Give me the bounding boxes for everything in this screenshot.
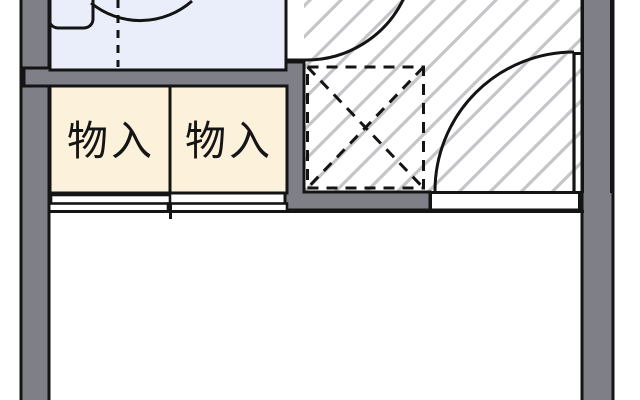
closet-left-label: 物入: [67, 118, 155, 164]
bathroom-floor: [50, 0, 286, 70]
closet-right-label: 物入: [185, 118, 273, 164]
wall-right: [582, 0, 613, 400]
room-top-left-bath: [49, 0, 286, 70]
closets: 物入 物入: [50, 86, 287, 193]
wall-left: [21, 0, 49, 400]
entry-hatch-region: [304, 0, 611, 193]
floor-plan: 物入 物入: [0, 0, 640, 400]
entry-hall-area: [304, 0, 611, 193]
doorway-threshold: [431, 193, 580, 211]
sliding-door-panel-left: [51, 195, 170, 204]
